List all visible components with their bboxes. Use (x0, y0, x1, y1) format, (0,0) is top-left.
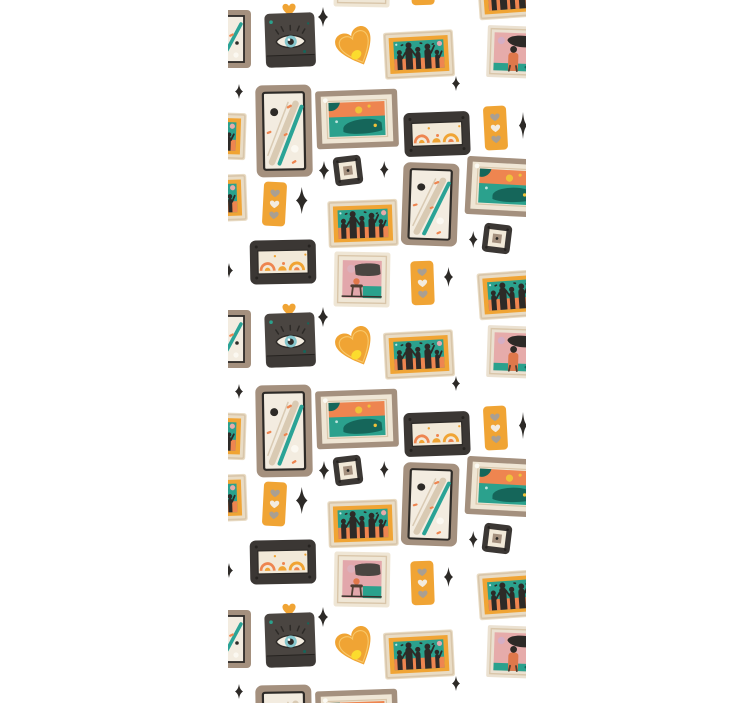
edge-frame-left (228, 310, 251, 368)
sparkle-c (235, 84, 243, 99)
mini-square-frame-a (332, 154, 363, 186)
family-photo-frame-c (476, 0, 526, 20)
heart-tag-b (262, 481, 287, 526)
sparkle-f (380, 461, 389, 478)
tilted-heart (332, 323, 380, 372)
landscape-frame-b (465, 156, 526, 218)
heart-tag-c (410, 0, 435, 5)
sparkle-a (318, 607, 328, 627)
seaside-figure-frame (486, 325, 526, 379)
sparkle-i (228, 263, 233, 278)
sparkle-d (519, 412, 526, 439)
rainbow-trinket-frame-a (403, 411, 470, 457)
sparkle-c (235, 384, 243, 399)
family-photo-frame-a (383, 629, 455, 680)
family-photo-frame-c (476, 269, 526, 321)
eye-portrait-frame (264, 603, 316, 668)
family-photo-frame-partial-left-a (228, 111, 247, 160)
canvas (0, 0, 752, 703)
family-photo-frame-partial-left-b (228, 174, 248, 223)
family-photo-frame-a (383, 29, 455, 80)
mirror-frame-a (255, 685, 313, 703)
edge-frame-left (228, 10, 251, 68)
mirror-frame-a (255, 385, 313, 478)
mini-square-frame-b (481, 522, 512, 554)
family-photo-frame-b (327, 499, 399, 548)
picture-frames-pattern-strip (228, 0, 526, 703)
sparkle-a (318, 307, 328, 327)
mirror-frame-b (401, 162, 460, 247)
reading-nook-frame (334, 0, 391, 7)
sparkle-h (469, 231, 478, 248)
sparkle-f (380, 161, 389, 178)
pattern-tile-2 (228, 3, 526, 320)
heart-tag-a (483, 105, 508, 150)
mirror-frame-b (401, 462, 460, 547)
sparkle-e (319, 461, 329, 480)
rainbow-trinket-frame-a (403, 111, 470, 157)
family-photo-frame-partial-left-a (228, 411, 247, 460)
landscape-frame-b (465, 456, 526, 518)
pattern-artwork (228, 0, 526, 703)
landscape-frame-a (315, 689, 399, 703)
heart-tag-b (262, 181, 287, 226)
sparkle-a (318, 7, 328, 27)
mirror-frame-a (255, 85, 313, 178)
tilted-heart (332, 623, 380, 672)
sparkle-b (452, 676, 460, 691)
sparkle-d (519, 112, 526, 139)
pattern-tile-3 (228, 303, 526, 620)
sparkle-j (444, 267, 453, 287)
seaside-figure-frame (486, 25, 526, 79)
family-photo-frame-c (476, 569, 526, 621)
family-photo-frame-partial-left-b (228, 474, 248, 523)
eye-portrait-frame (264, 3, 316, 68)
reading-nook-frame (334, 252, 391, 308)
edge-frame-left (228, 610, 251, 668)
heart-tag-c (410, 261, 435, 306)
mini-square-frame-b (481, 222, 512, 254)
heart-tag-a (483, 405, 508, 450)
reading-nook-frame (334, 552, 391, 608)
tilted-heart (332, 23, 380, 72)
sparkle-c (235, 684, 243, 699)
rainbow-trinket-frame-b (250, 539, 317, 584)
pattern-copies (228, 0, 526, 703)
mini-square-frame-a (332, 454, 363, 486)
family-photo-frame-a (383, 329, 455, 380)
sparkle-e (319, 161, 329, 180)
sparkle-g (296, 487, 308, 514)
family-photo-frame-b (327, 199, 399, 248)
sparkle-j (444, 567, 453, 587)
landscape-frame-a (315, 389, 399, 450)
heart-tag-c (410, 561, 435, 606)
eye-portrait-frame (264, 303, 316, 368)
landscape-frame-a (315, 89, 399, 150)
sparkle-g (296, 187, 308, 214)
sparkle-b (452, 376, 460, 391)
rainbow-trinket-frame-b (250, 239, 317, 284)
seaside-figure-frame (486, 625, 526, 679)
sparkle-h (469, 531, 478, 548)
sparkle-i (228, 563, 233, 578)
sparkle-b (452, 76, 460, 91)
